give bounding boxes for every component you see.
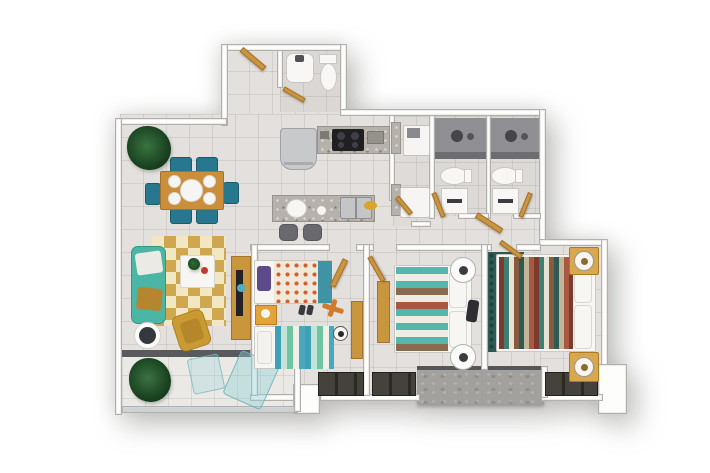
wall-step-top <box>539 239 608 246</box>
coffee-table-plant <box>188 258 200 270</box>
shower-drain-bath1 <box>451 130 463 142</box>
wall-top-right <box>340 109 546 116</box>
wardrobe-bedroom2 <box>372 372 416 396</box>
terrace-concrete-ledge <box>417 370 544 404</box>
shower-drain-bath2 <box>505 130 517 142</box>
toilet-bath1-tank <box>464 169 472 183</box>
wall-bedrooms-top-d <box>516 244 541 251</box>
wall-bath1-bath2 <box>486 115 491 219</box>
kids-nightstand-knob <box>261 309 270 318</box>
plate-center <box>180 179 203 202</box>
pouf <box>139 327 156 344</box>
counter-appliance <box>367 131 384 144</box>
island-bowl <box>286 199 307 218</box>
bed2-pillow-2 <box>449 311 467 348</box>
wardrobe-kids <box>318 372 364 396</box>
balcony-rail-glass <box>122 406 298 413</box>
floor-plan-image <box>0 0 710 473</box>
powder-toilet-bowl <box>320 63 337 91</box>
apartment-floor-plan <box>0 0 710 473</box>
wall-entry-left <box>221 44 228 126</box>
kids-bed-top-pillow <box>257 266 271 291</box>
stool-1 <box>279 224 298 241</box>
shower-head-bath2 <box>521 133 528 140</box>
island-soap <box>364 201 377 210</box>
faucet-bath2 <box>498 199 513 203</box>
plate-1 <box>168 175 181 188</box>
shower-edge-bath2 <box>490 152 540 159</box>
toilet-bath2-tank <box>515 169 523 183</box>
coffee-table-decor <box>201 267 208 274</box>
wall-right-lower <box>601 239 608 371</box>
master-duvet <box>499 257 573 349</box>
master-pillow-2 <box>574 305 592 349</box>
wall-powder-partition <box>277 50 283 88</box>
bed2-lamp-bottom <box>459 353 468 362</box>
plant-balcony <box>129 358 171 402</box>
master-lamp-bottom <box>581 364 588 371</box>
console-decor <box>237 284 245 292</box>
master-lamp-top <box>581 258 588 265</box>
counter-item <box>320 131 329 139</box>
tv <box>236 270 243 316</box>
kids-bed-bottom-pillow <box>257 331 272 364</box>
dining-chair-6 <box>223 182 239 204</box>
wall-kids-bed2 <box>363 244 370 396</box>
bed2-lamp-top <box>459 266 468 275</box>
wall-bedrooms-top-c <box>396 244 492 251</box>
plate-3 <box>168 192 181 205</box>
pillar-bottom-right <box>598 364 627 414</box>
wall-left <box>115 118 122 415</box>
plant-dining-corner <box>127 126 171 170</box>
stool-2 <box>303 224 322 241</box>
soccer-ball-patch <box>338 331 344 337</box>
sofa-pillow-2 <box>136 287 163 311</box>
plate-4 <box>203 192 216 205</box>
wall-powder-right <box>340 44 347 116</box>
island-sink-divider <box>355 198 357 218</box>
wall-right-upper <box>539 109 546 246</box>
powder-faucet <box>295 55 304 62</box>
laundry-counter-1 <box>391 122 401 154</box>
sofa-pillow-1 <box>135 250 164 275</box>
bed2-duvet <box>396 267 448 351</box>
washer-panel <box>407 128 420 138</box>
faucet-bath1 <box>447 199 462 203</box>
shower-head-bath1 <box>467 133 474 140</box>
wall-bedrooms-top-a <box>250 244 330 251</box>
dining-chair-3 <box>170 208 192 224</box>
kids-desk <box>351 301 363 359</box>
shower-edge-bath1 <box>434 152 486 159</box>
kids-bed-top-duvet <box>274 261 320 303</box>
dining-chair-4 <box>196 208 218 224</box>
wall-bed2-master <box>481 244 488 370</box>
island-bowl-small <box>317 206 326 215</box>
fridge-handle <box>284 162 313 165</box>
wall-top-left <box>115 118 227 125</box>
plate-2 <box>203 175 216 188</box>
kids-bed-bottom-duvet <box>275 326 334 369</box>
cooktop <box>332 129 364 151</box>
bed2-bench <box>377 281 390 343</box>
wall-laundry-bottom <box>411 221 431 227</box>
dining-chair-5 <box>145 183 161 205</box>
